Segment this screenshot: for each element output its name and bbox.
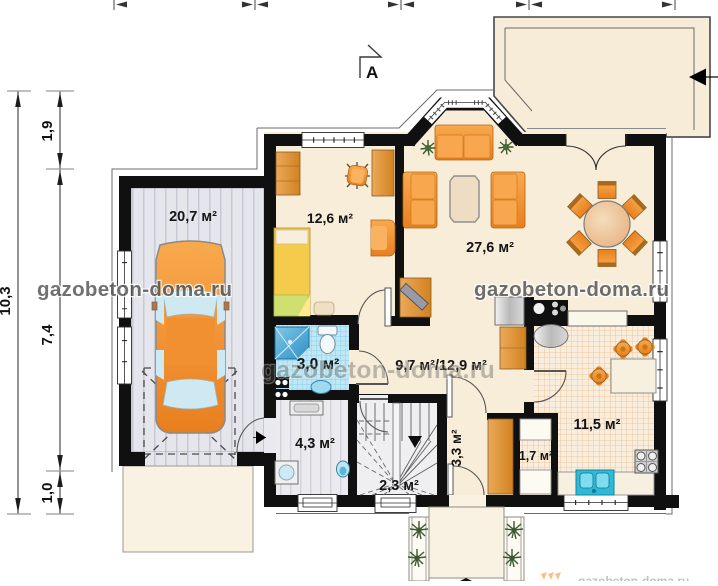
- svg-text:7,4: 7,4: [39, 324, 56, 346]
- svg-text:1,0: 1,0: [39, 483, 56, 504]
- svg-text:2,3 м²: 2,3 м²: [379, 478, 419, 494]
- svg-text:11,5 м²: 11,5 м²: [573, 417, 620, 433]
- svg-text:gazobeton-doma.ru: gazobeton-doma.ru: [578, 574, 689, 581]
- svg-text:gazobeton-doma.ru: gazobeton-doma.ru: [37, 278, 232, 301]
- svg-text:gazobeton-doma.ru: gazobeton-doma.ru: [474, 278, 669, 301]
- svg-text:1,9: 1,9: [39, 121, 56, 142]
- svg-text:20,7 м²: 20,7 м²: [169, 209, 217, 225]
- svg-text:4,3 м²: 4,3 м²: [295, 436, 335, 452]
- svg-text:12,6 м²: 12,6 м²: [307, 210, 353, 226]
- svg-text:27,6 м²: 27,6 м²: [466, 240, 514, 256]
- svg-text:1,7 м²: 1,7 м²: [519, 449, 553, 463]
- svg-text:10,3: 10,3: [0, 286, 14, 315]
- svg-text:gazobeton-doma.ru: gazobeton-doma.ru: [261, 357, 495, 384]
- svg-text:3,3 м²: 3,3 м²: [449, 429, 464, 467]
- svg-text:A: A: [366, 63, 378, 82]
